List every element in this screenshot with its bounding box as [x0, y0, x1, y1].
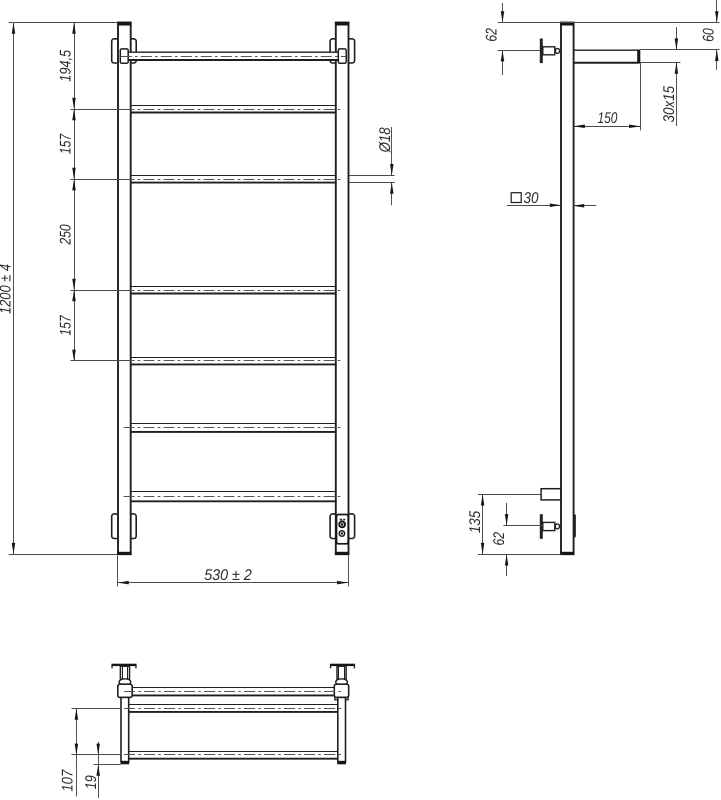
svg-text:1200 ± 4: 1200 ± 4	[0, 264, 15, 314]
svg-text:62: 62	[491, 532, 508, 546]
svg-text:250: 250	[57, 224, 74, 245]
svg-text:60: 60	[701, 28, 718, 42]
svg-text:30x15: 30x15	[661, 86, 678, 123]
svg-text:157: 157	[57, 133, 74, 154]
svg-text:157: 157	[57, 314, 74, 335]
svg-text:Ø18: Ø18	[377, 127, 394, 153]
svg-text:62: 62	[484, 28, 501, 42]
svg-text:530 ± 2: 530 ± 2	[204, 567, 252, 584]
svg-text:19: 19	[83, 775, 100, 789]
svg-text:135: 135	[467, 511, 484, 534]
svg-text:194,5: 194,5	[57, 50, 74, 82]
svg-text:150: 150	[598, 110, 618, 127]
svg-text:107: 107	[60, 769, 77, 792]
svg-text:30: 30	[524, 190, 539, 207]
